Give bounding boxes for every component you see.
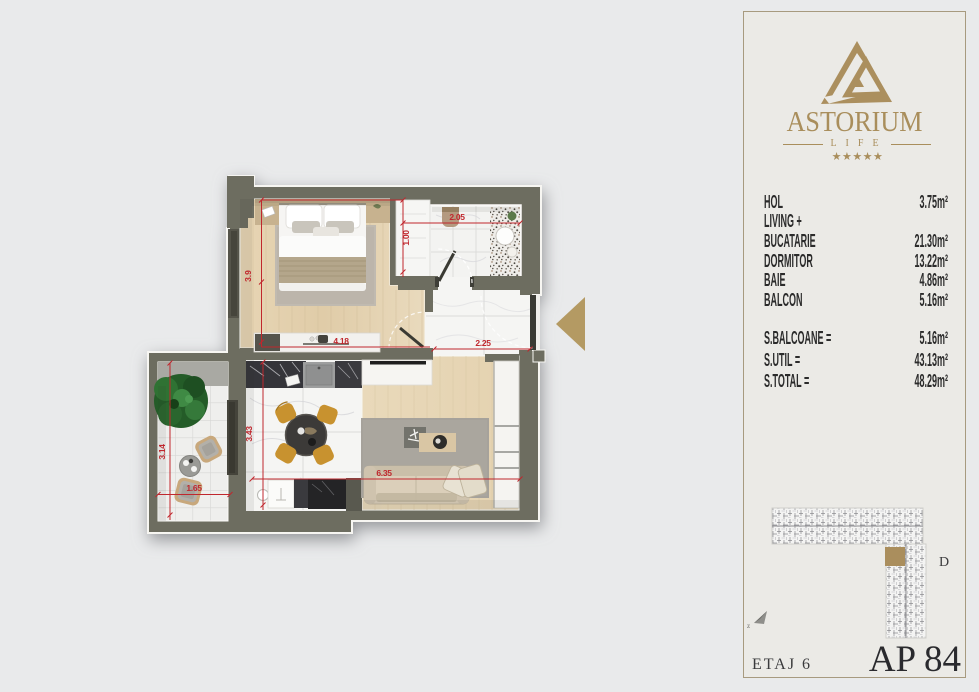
svg-text:2.05: 2.05 — [449, 212, 465, 222]
svg-text:3.43: 3.43 — [244, 426, 254, 442]
svg-text:D: D — [939, 555, 949, 570]
svg-text:3.14: 3.14 — [157, 444, 167, 460]
svg-text:2.25: 2.25 — [475, 338, 491, 348]
svg-text:4.18: 4.18 — [333, 336, 349, 346]
svg-text:3.9: 3.9 — [243, 270, 253, 282]
svg-text:6.35: 6.35 — [376, 468, 392, 478]
svg-text:z: z — [747, 622, 750, 630]
svg-text:1.65: 1.65 — [186, 483, 202, 493]
svg-text:1.00: 1.00 — [401, 230, 411, 246]
